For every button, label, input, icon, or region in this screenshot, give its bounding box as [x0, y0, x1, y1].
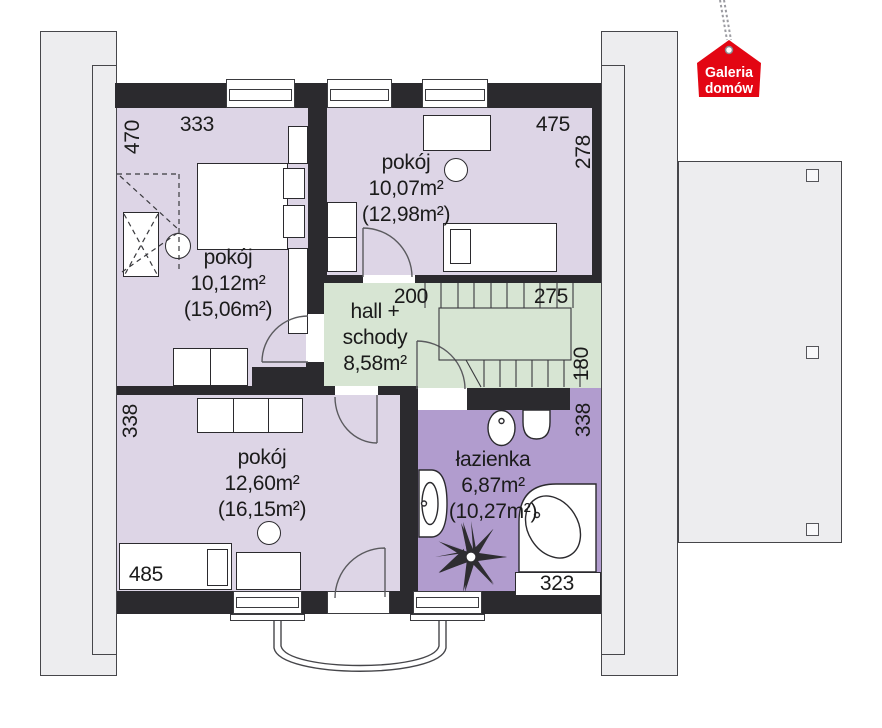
desk: [236, 552, 301, 590]
logo-line2: domów: [705, 80, 753, 97]
room-area: 10,07m²: [326, 176, 486, 202]
wall-mid-horizontal-a: [117, 386, 335, 395]
pillow: [283, 168, 305, 199]
room-area-total: (16,15m²): [182, 497, 342, 523]
window-top-1-frame: [229, 89, 292, 101]
door-gap-bottomleft: [335, 386, 378, 395]
logo-line1: Galeria: [705, 64, 754, 81]
wall-mid-horizontal-b: [378, 386, 418, 395]
wall-topright-bottom-b: [415, 275, 601, 283]
pillow: [283, 205, 305, 238]
roof-anchor-bottom: [806, 523, 819, 536]
room-name: schody: [315, 325, 435, 351]
dim-200: 200: [383, 285, 439, 309]
roof-anchor-middle: [806, 346, 819, 359]
porch-outline: [274, 621, 446, 671]
dim-275: 275: [523, 285, 579, 309]
label-room-top-right: pokój 10,07m² (12,98m²): [326, 150, 486, 228]
shelf: [288, 126, 308, 164]
room-area-total: (15,06m²): [148, 297, 308, 323]
window-top-3-frame: [425, 89, 485, 101]
label-bathroom: łazienka 6,87m² (10,27m²): [413, 447, 573, 525]
room-area: 12,60m²: [182, 471, 342, 497]
door-gap-topright: [363, 275, 415, 283]
tag-hole-icon: [726, 47, 733, 54]
dim-278: 278: [572, 124, 596, 180]
desk: [423, 115, 491, 151]
roof-anchor-top: [806, 169, 819, 182]
balcony-door-gap: [327, 591, 390, 614]
room-area-total: (12,98m²): [326, 202, 486, 228]
label-room-bottom-left: pokój 12,60m² (16,15m²): [182, 445, 342, 523]
dim-485: 485: [118, 563, 174, 587]
room-area: 10,12m²: [148, 271, 308, 297]
galeria-domow-logo: Galeria domów: [697, 0, 761, 97]
bed-double: [197, 163, 288, 250]
room-area: 8,58m²: [315, 351, 435, 377]
window-top-2-frame: [330, 89, 389, 101]
window-bottom-2-frame: [416, 597, 479, 608]
right-house-edge: [601, 65, 625, 655]
dim-323: 323: [529, 572, 585, 596]
door-gap-bathroom: [418, 388, 467, 410]
room-area: 6,87m²: [413, 473, 573, 499]
window-bottom-1-frame: [236, 597, 299, 608]
room-name: łazienka: [413, 447, 573, 473]
dim-338-right: 338: [572, 392, 596, 448]
dim-333: 333: [169, 113, 225, 137]
wardrobe: [197, 398, 303, 433]
dresser: [173, 348, 248, 386]
window-bottom-1-sill: [230, 614, 305, 621]
label-room-top-left: pokój 10,12m² (15,06m²): [148, 245, 308, 323]
dim-470: 470: [121, 109, 145, 165]
wall-topright-bottom-a: [327, 275, 363, 283]
dim-338-left: 338: [119, 393, 143, 449]
dim-180: 180: [570, 336, 594, 392]
chain-icon: [720, 0, 731, 40]
room-name: pokój: [182, 445, 342, 471]
window-bottom-2-sill: [410, 614, 485, 621]
left-house-edge: [92, 65, 117, 655]
stool: [257, 521, 281, 545]
pillow: [450, 229, 471, 264]
room-name: pokój: [148, 245, 308, 271]
pillow: [207, 549, 228, 586]
floor-plan-page: Galeria domów pokój 10,12m² (15,06m²) po…: [0, 0, 882, 728]
room-name: pokój: [326, 150, 486, 176]
wall-bath-top: [467, 388, 570, 410]
tag-shape: [697, 40, 761, 97]
label-hall: hall + schody 8,58m²: [315, 299, 435, 377]
room-area-total: (10,27m²): [413, 499, 573, 525]
wall-divider-top-rooms: [308, 108, 327, 283]
